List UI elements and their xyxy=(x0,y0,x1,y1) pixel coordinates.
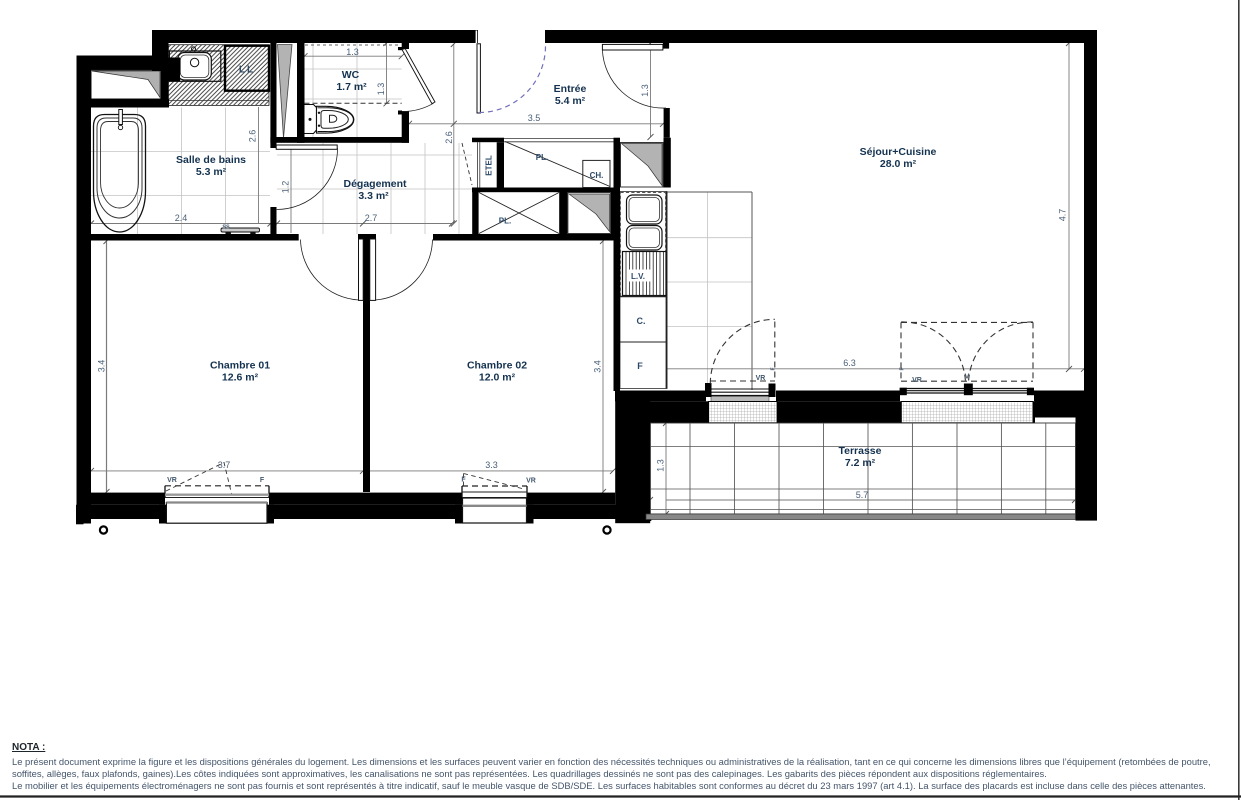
svg-text:7.2 m²: 7.2 m² xyxy=(845,457,876,469)
svg-text:C.: C. xyxy=(637,316,646,326)
svg-text:Entrée: Entrée xyxy=(554,83,587,95)
svg-text:5.4 m²: 5.4 m² xyxy=(555,95,586,107)
svg-text:CH.: CH. xyxy=(590,171,604,180)
svg-text:WC: WC xyxy=(342,69,360,81)
svg-text:Chambre 01: Chambre 01 xyxy=(210,360,270,372)
svg-text:VR: VR xyxy=(526,478,536,485)
svg-text:1.7 m²: 1.7 m² xyxy=(336,81,367,93)
svg-text:F: F xyxy=(637,361,643,371)
svg-text:PL.: PL. xyxy=(536,153,548,162)
svg-text:3.3 m²: 3.3 m² xyxy=(358,190,389,202)
svg-text:1.2: 1.2 xyxy=(281,181,291,194)
svg-text:1.3: 1.3 xyxy=(640,84,650,97)
svg-text:2.4: 2.4 xyxy=(175,213,188,223)
svg-text:2.6: 2.6 xyxy=(248,130,258,143)
svg-text:2.7: 2.7 xyxy=(365,213,378,223)
svg-text:3.5: 3.5 xyxy=(528,113,541,123)
svg-text:Terrasse: Terrasse xyxy=(838,445,881,457)
svg-text:Dégagement: Dégagement xyxy=(343,178,407,190)
svg-text:Chambre 02: Chambre 02 xyxy=(467,360,527,372)
svg-text:1.3: 1.3 xyxy=(346,47,359,57)
svg-text:L.V.: L.V. xyxy=(631,272,645,281)
svg-text:3.4: 3.4 xyxy=(97,360,107,373)
svg-text:12.6 m²: 12.6 m² xyxy=(222,372,259,384)
svg-text:PL.: PL. xyxy=(499,217,511,226)
svg-text:2.6: 2.6 xyxy=(444,131,454,144)
svg-text:Séjour+Cuisine: Séjour+Cuisine xyxy=(860,146,937,158)
svg-text:F: F xyxy=(771,367,777,370)
svg-text:28.0 m²: 28.0 m² xyxy=(880,158,917,170)
svg-text:V: V xyxy=(965,374,970,381)
svg-text:3.3: 3.3 xyxy=(485,460,498,470)
svg-text:12.0 m²: 12.0 m² xyxy=(479,372,516,384)
svg-text:LL: LL xyxy=(239,65,255,76)
svg-text:1.3: 1.3 xyxy=(376,83,386,96)
svg-text:1.3: 1.3 xyxy=(655,459,665,472)
svg-text:4.7: 4.7 xyxy=(1058,209,1068,222)
svg-text:VR: VR xyxy=(756,375,766,382)
svg-text:5.7: 5.7 xyxy=(856,490,869,500)
svg-text:Salle de bains: Salle de bains xyxy=(176,154,246,166)
svg-text:6.3: 6.3 xyxy=(843,358,856,368)
svg-text:F: F xyxy=(461,477,466,484)
svg-text:5.3 m²: 5.3 m² xyxy=(196,166,227,178)
svg-text:SS: SS xyxy=(222,225,230,231)
svg-text:F: F xyxy=(900,367,906,370)
svg-text:ETEL: ETEL xyxy=(485,155,494,176)
svg-text:VR: VR xyxy=(167,477,177,484)
svg-text:F: F xyxy=(260,477,265,484)
svg-text:3.4: 3.4 xyxy=(593,360,603,373)
svg-text:VR: VR xyxy=(912,377,922,384)
